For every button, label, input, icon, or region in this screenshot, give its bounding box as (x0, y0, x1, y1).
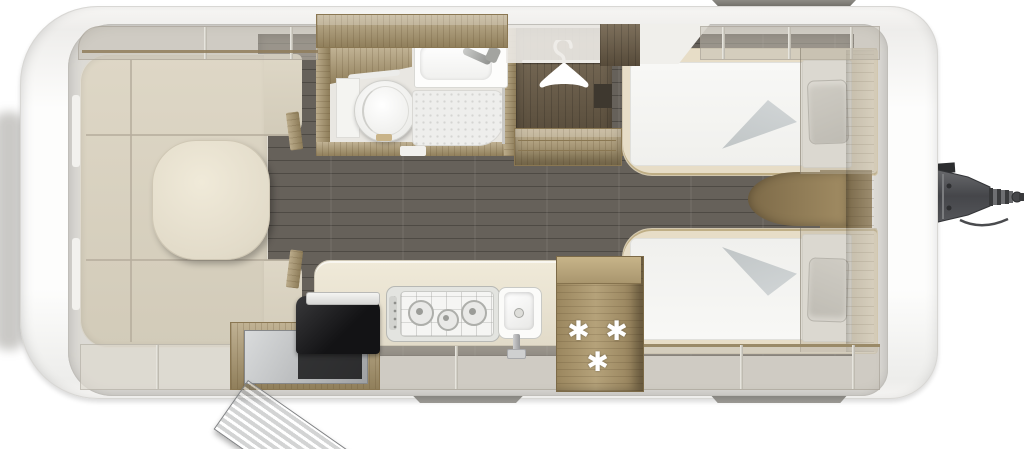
bedhead-locker-bottom (800, 228, 877, 352)
dinette-table (152, 140, 270, 260)
bedhead-locker-top (800, 48, 877, 174)
handbrake-lever (960, 219, 1008, 225)
cabinet-line (518, 140, 616, 141)
toilet-lid-line (362, 86, 409, 136)
locker-divider (204, 27, 207, 59)
sink-drain (514, 308, 524, 318)
locker-divider (455, 345, 458, 389)
black-appliance-handle (306, 292, 380, 305)
burner-cap (443, 315, 449, 321)
hob-controls (389, 296, 397, 330)
wardrobe-lower-cabinet (514, 128, 622, 166)
bathroom-door-step (400, 146, 426, 156)
bench-seam (86, 134, 298, 136)
rear-window (72, 238, 80, 310)
bathroom-top-cabinet (316, 14, 508, 48)
toilet-foot (376, 134, 392, 141)
drawer-divider (156, 345, 159, 389)
between-beds-step-round (748, 172, 848, 226)
locker-wood-rail (82, 50, 318, 53)
shower-tray (412, 90, 504, 146)
locker-divider (788, 27, 791, 59)
wardrobe-top-wedge (600, 24, 640, 66)
wall-gap (506, 25, 602, 63)
caravan-floorplan: ✱ ✱ ✱ (0, 0, 1024, 449)
heater-cabinet-top (557, 257, 641, 284)
wardrobe-cubby (594, 84, 612, 108)
burner-cap (416, 308, 423, 315)
shower-glass (502, 88, 505, 144)
heater-stars-label: ✱ ✱ ✱ (558, 316, 640, 378)
hitch-grip (989, 188, 1013, 206)
locker-divider (740, 345, 743, 389)
sink-faucet-foot (507, 349, 526, 359)
locker-divider (722, 27, 725, 59)
bed-mattress-bottom (630, 238, 812, 340)
bench-seam (130, 60, 132, 342)
locker-divider (852, 345, 855, 389)
rear-window (72, 95, 80, 167)
burner-cap (469, 308, 476, 315)
cabinet-line (518, 150, 616, 151)
overhead-locker-top-left (78, 26, 318, 60)
locker-divider (290, 27, 293, 59)
